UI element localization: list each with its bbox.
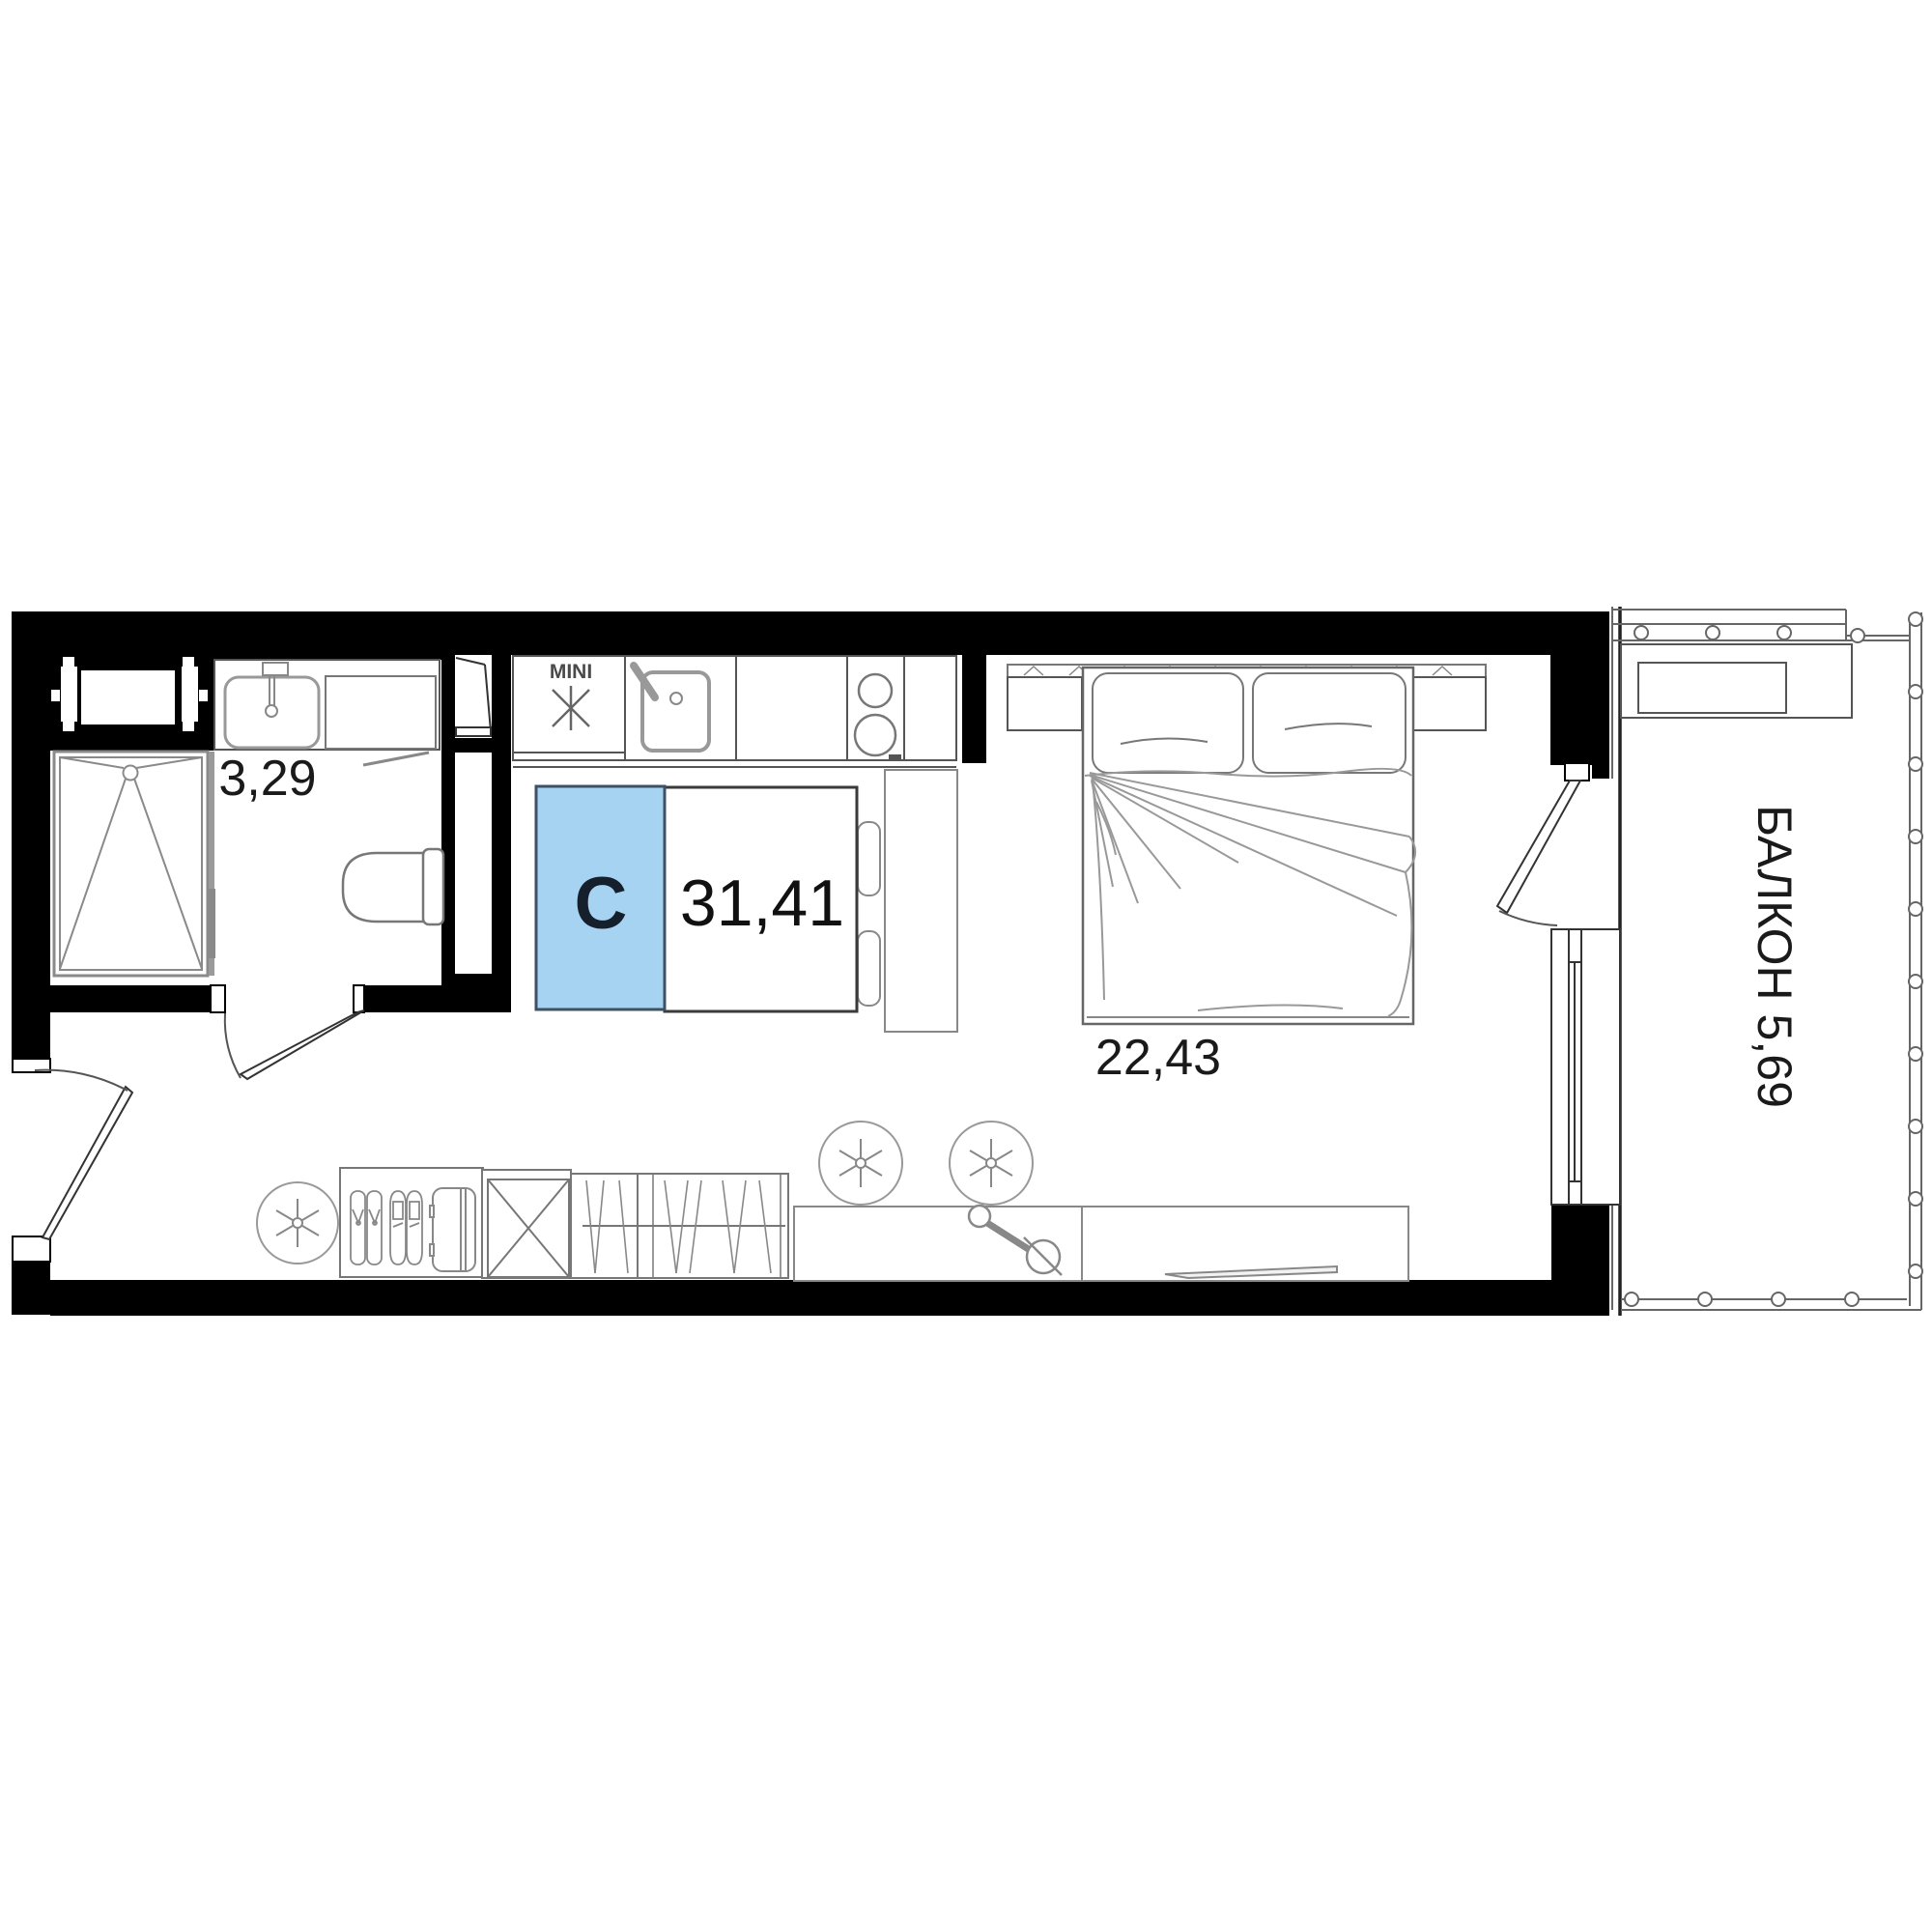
svg-text:3,29: 3,29 <box>218 751 316 807</box>
svg-text:БАЛКОН 5,69: БАЛКОН 5,69 <box>1747 805 1802 1108</box>
svg-text:22,43: 22,43 <box>1095 1030 1221 1086</box>
svg-text:31,41: 31,41 <box>680 867 844 940</box>
svg-text:С: С <box>575 863 628 945</box>
svg-text:MINI: MINI <box>550 661 592 683</box>
